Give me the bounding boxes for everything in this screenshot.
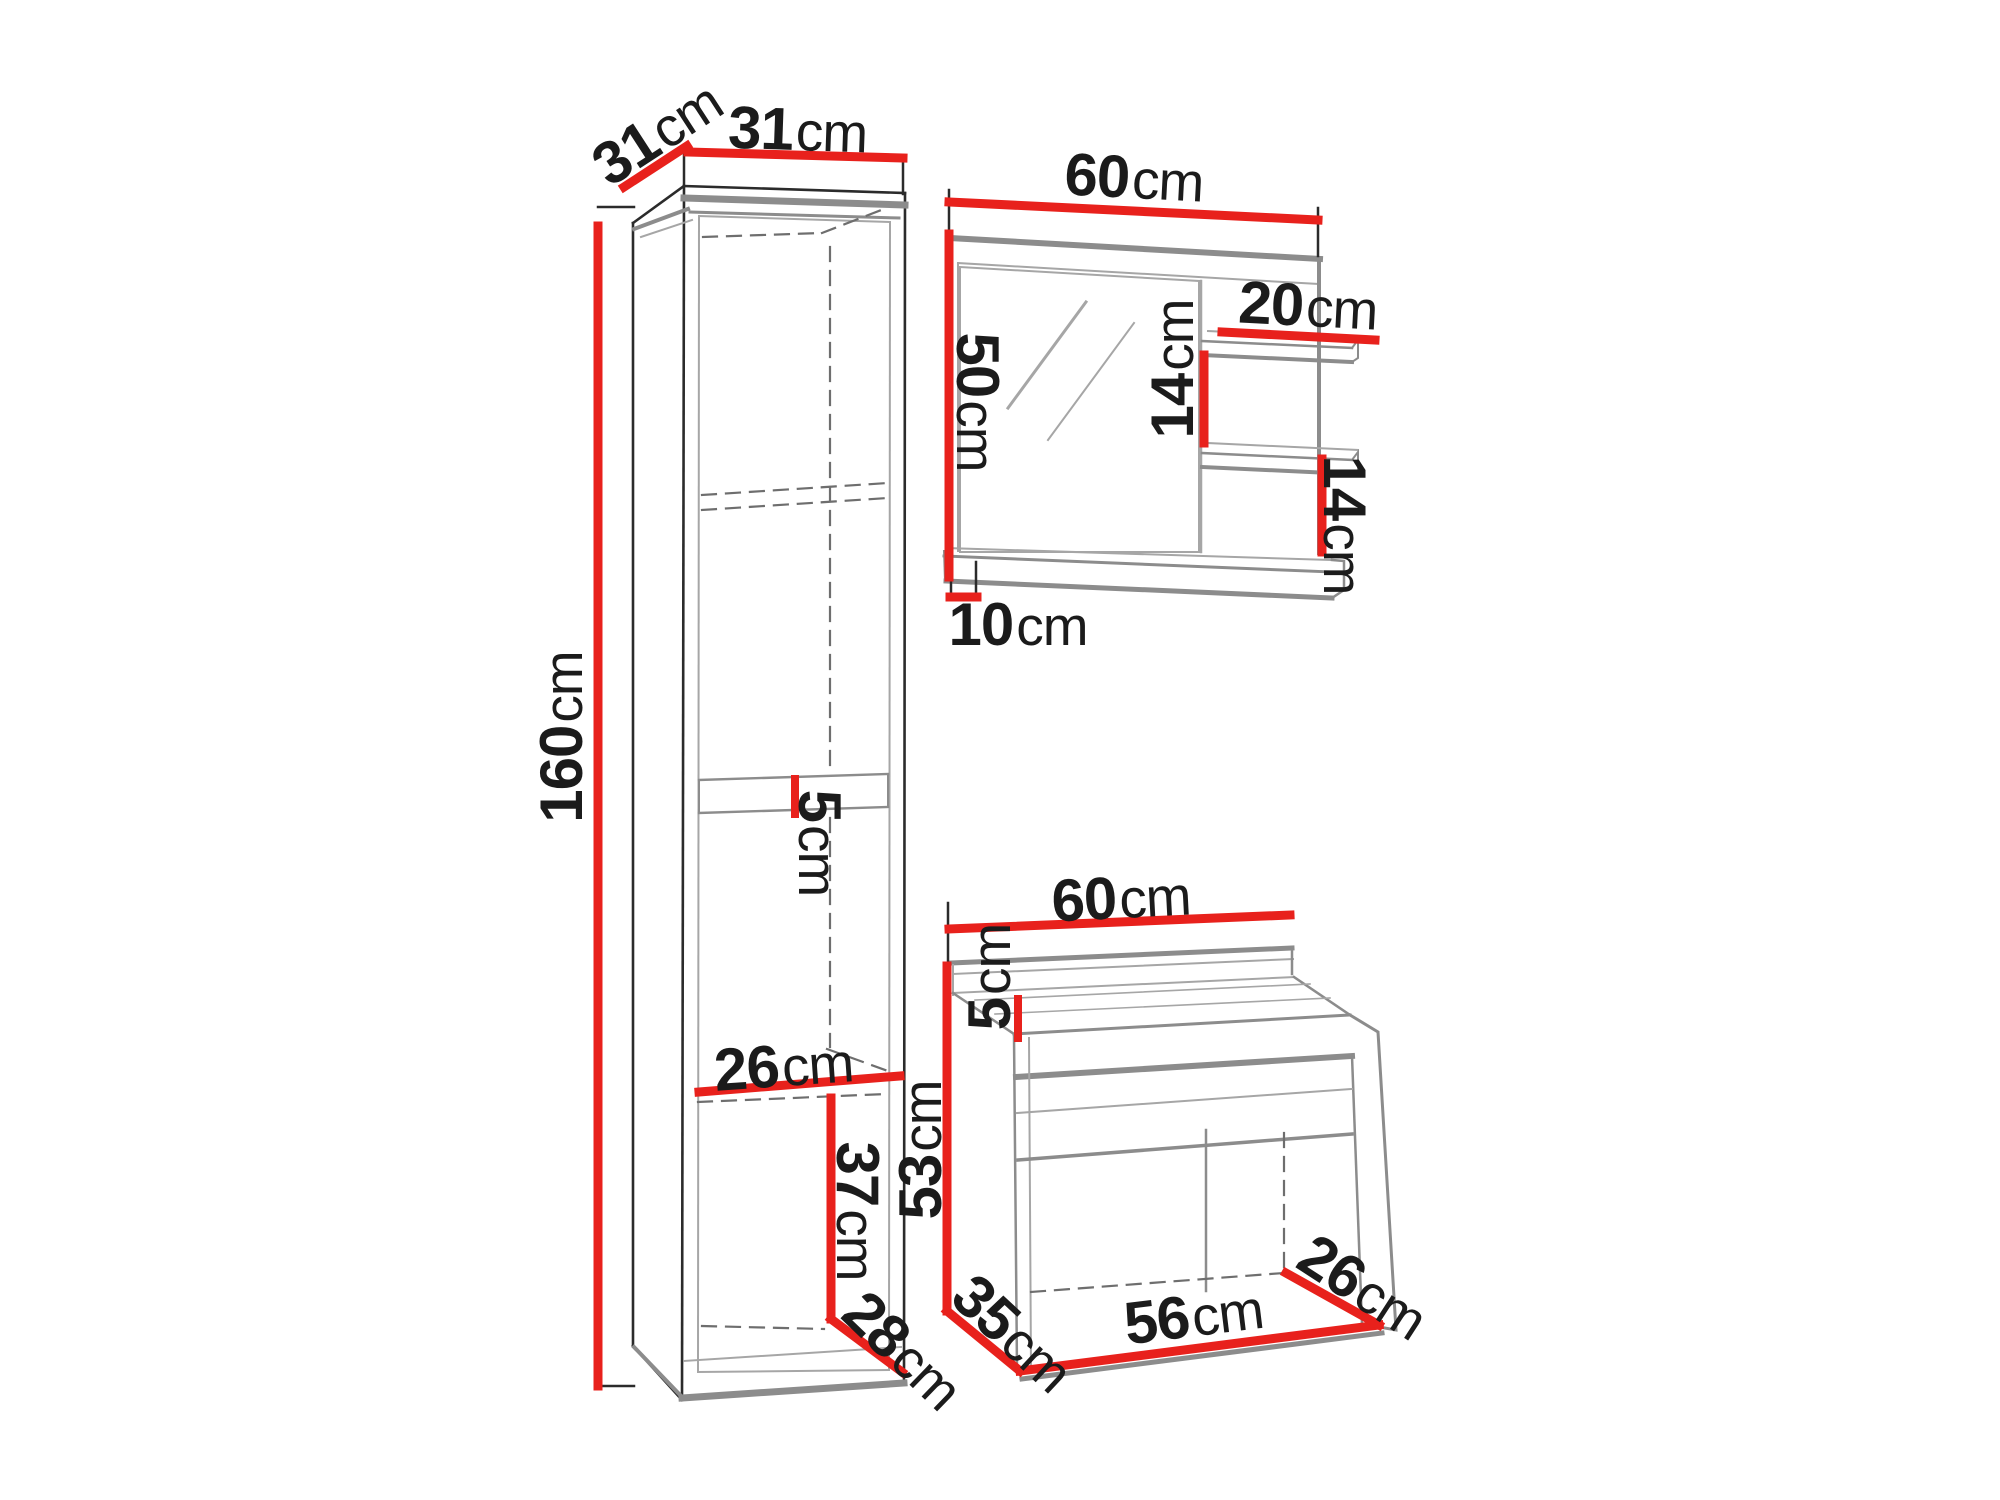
- tall-cabinet-depth-label: 31cm: [580, 67, 733, 199]
- mirror-shelf-width-label: 20cm: [1237, 268, 1379, 342]
- mirror-ledge-depth-label: 10cm: [948, 591, 1087, 658]
- furniture-dimensions-diagram: 31cm 31cm 160cm 5cm 26cm 37cm 28cm: [0, 0, 2000, 1500]
- washbasin-cabinet-drawing: 60cm 5cm 53cm 35cm 56cm 26cm: [887, 860, 1440, 1404]
- mirror-height-label: 50cm: [944, 332, 1011, 471]
- tall-cabinet-shelf-thickness-label: 5cm: [786, 790, 853, 897]
- washbasin-height-label: 53cm: [887, 1080, 954, 1219]
- mirror-cabinet-drawing: 60cm 50cm 20cm 14cm 14cm 10cm: [944, 140, 1379, 658]
- mirror-width-label: 60cm: [1063, 140, 1205, 214]
- tall-cabinet-shelf-depth-label: 26cm: [712, 1027, 855, 1104]
- tall-cabinet-lower-section-label: 37cm: [824, 1141, 891, 1280]
- mirror-shelf-spacing-label: 14cm: [1139, 299, 1206, 438]
- tall-cabinet-height-label: 160cm: [528, 651, 595, 822]
- mirror-lower-shelf-label: 14cm: [1311, 455, 1378, 594]
- washbasin-top-height-label: 5cm: [956, 924, 1023, 1031]
- diagram-page: 31cm 31cm 160cm 5cm 26cm 37cm 28cm: [0, 0, 2000, 1500]
- tall-cabinet-width-label: 31cm: [727, 94, 868, 166]
- washbasin-width-label: 60cm: [1050, 860, 1192, 934]
